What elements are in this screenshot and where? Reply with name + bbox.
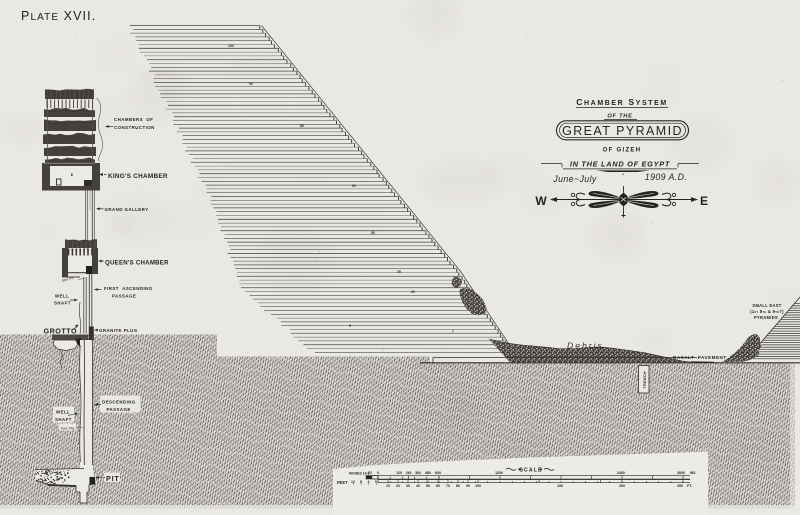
svg-text:FT.: FT. — [686, 484, 692, 488]
svg-text:CHAMBERS OF: CHAMBERS OF — [114, 117, 153, 122]
svg-text:150: 150 — [557, 484, 563, 488]
svg-text:BASALT PAVEMENT: BASALT PAVEMENT — [673, 355, 727, 360]
svg-text:3000: 3000 — [677, 471, 685, 475]
svg-text:1200: 1200 — [495, 471, 503, 475]
svg-text:INCHES 14·6: INCHES 14·6 — [349, 472, 370, 476]
svg-text:QUEEN'S CHAMBER: QUEEN'S CHAMBER — [105, 260, 169, 267]
svg-text:8: 8 — [360, 480, 362, 484]
svg-text:DESCENDING: DESCENDING — [102, 400, 136, 405]
svg-text:FIRST ASCENDING: FIRST ASCENDING — [104, 286, 153, 291]
svg-text:5: 5 — [349, 324, 351, 328]
svg-text:W: W — [535, 194, 547, 208]
svg-text:50: 50 — [426, 484, 430, 488]
svg-text:GRANITE PLUG: GRANITE PLUG — [99, 328, 138, 333]
svg-text:100: 100 — [475, 484, 481, 488]
svg-text:Iron Pla.: Iron Pla. — [61, 426, 76, 431]
svg-text:90: 90 — [466, 484, 470, 488]
svg-text:250: 250 — [677, 484, 683, 488]
svg-text:4: 4 — [368, 480, 370, 484]
svg-text:600: 600 — [435, 471, 441, 475]
svg-text:GROTTO: GROTTO — [44, 327, 78, 336]
svg-text:INS.: INS. — [689, 471, 696, 475]
svg-text:30: 30 — [406, 484, 410, 488]
svg-text:PLATE XVII.: PLATE XVII. — [21, 9, 96, 23]
svg-text:0: 0 — [375, 480, 377, 484]
svg-text:80: 80 — [456, 484, 460, 488]
svg-text:120: 120 — [396, 471, 402, 475]
svg-text:20: 20 — [396, 484, 400, 488]
svg-text:SCALE: SCALE — [519, 468, 542, 474]
svg-text:Debris: Debris — [567, 341, 604, 351]
svg-text:SHAFT: SHAFT — [55, 417, 72, 422]
svg-text:TRENCH: TRENCH — [643, 371, 647, 388]
svg-text:50: 50 — [371, 231, 375, 235]
svg-text:7: 7 — [452, 330, 454, 334]
svg-text:WELL: WELL — [55, 294, 69, 299]
svg-text:2400: 2400 — [617, 471, 625, 475]
svg-text:PASSAGE: PASSAGE — [107, 407, 131, 412]
svg-text:60: 60 — [436, 484, 440, 488]
svg-text:WELL: WELL — [56, 410, 70, 415]
svg-text:60: 60 — [352, 184, 356, 188]
svg-text:June~July: June~July — [552, 174, 597, 184]
svg-text:70: 70 — [446, 484, 450, 488]
svg-text:240: 240 — [406, 471, 412, 475]
svg-text:100: 100 — [228, 44, 234, 48]
svg-text:SMALL EAST: SMALL EAST — [752, 303, 781, 308]
svg-text:PASSAGE: PASSAGE — [112, 294, 136, 299]
svg-text:SHAFT: SHAFT — [54, 301, 71, 306]
svg-text:40: 40 — [416, 484, 420, 488]
svg-text:OF GIZEH: OF GIZEH — [603, 148, 642, 154]
svg-text:CONSTRUCTION: CONSTRUCTION — [114, 125, 155, 130]
svg-text:PIT: PIT — [106, 474, 120, 483]
svg-text:GREAT PYRAMID: GREAT PYRAMID — [562, 124, 683, 138]
svg-text:GRAND GALLERY: GRAND GALLERY — [105, 207, 149, 212]
svg-text:20: 20 — [411, 290, 415, 294]
svg-text:360: 360 — [415, 471, 421, 475]
svg-text:480: 480 — [425, 471, 431, 475]
svg-text:200: 200 — [619, 484, 625, 488]
svg-text:1909 A.D.: 1909 A.D. — [645, 172, 687, 182]
svg-text:PYRAMIDS: PYRAMIDS — [754, 315, 778, 320]
svg-text:OF THE: OF THE — [607, 114, 632, 120]
svg-text:80: 80 — [300, 124, 304, 128]
svg-text:FEET: FEET — [337, 480, 348, 485]
svg-text:90: 90 — [249, 82, 253, 86]
svg-text:12: 12 — [351, 480, 355, 484]
svg-text:10: 10 — [386, 484, 390, 488]
svg-text:KING'S CHAMBER: KING'S CHAMBER — [108, 173, 168, 180]
svg-text:25: 25 — [397, 270, 401, 274]
svg-text:72: 72 — [368, 471, 372, 475]
svg-text:E: E — [700, 194, 708, 208]
svg-text:IN THE LAND OF EGYPT: IN THE LAND OF EGYPT — [570, 160, 671, 169]
svg-text:0: 0 — [377, 471, 379, 475]
